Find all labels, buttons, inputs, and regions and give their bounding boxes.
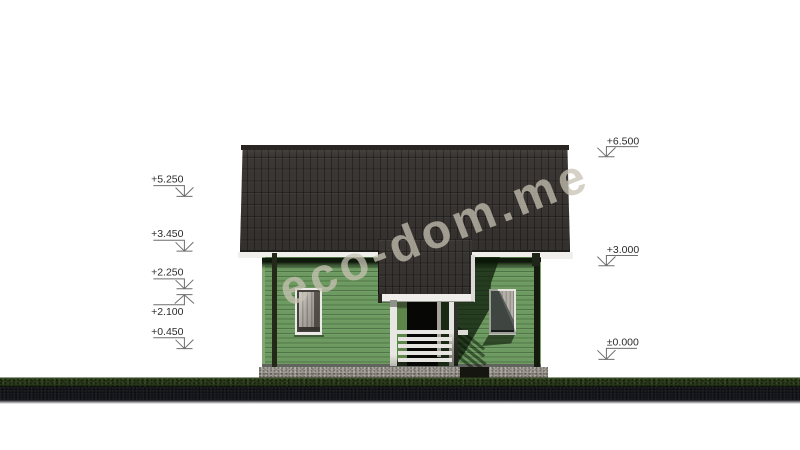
svg-text:+3.450: +3.450 bbox=[151, 228, 184, 240]
svg-text:+2.250: +2.250 bbox=[151, 267, 184, 279]
svg-text:+6.500: +6.500 bbox=[607, 135, 640, 147]
svg-text:+0.450: +0.450 bbox=[151, 326, 184, 338]
svg-text:+3.000: +3.000 bbox=[607, 244, 640, 256]
svg-text:+5.250: +5.250 bbox=[151, 173, 184, 185]
svg-text:±0.000: ±0.000 bbox=[607, 337, 639, 349]
svg-text:+2.100: +2.100 bbox=[151, 306, 184, 318]
